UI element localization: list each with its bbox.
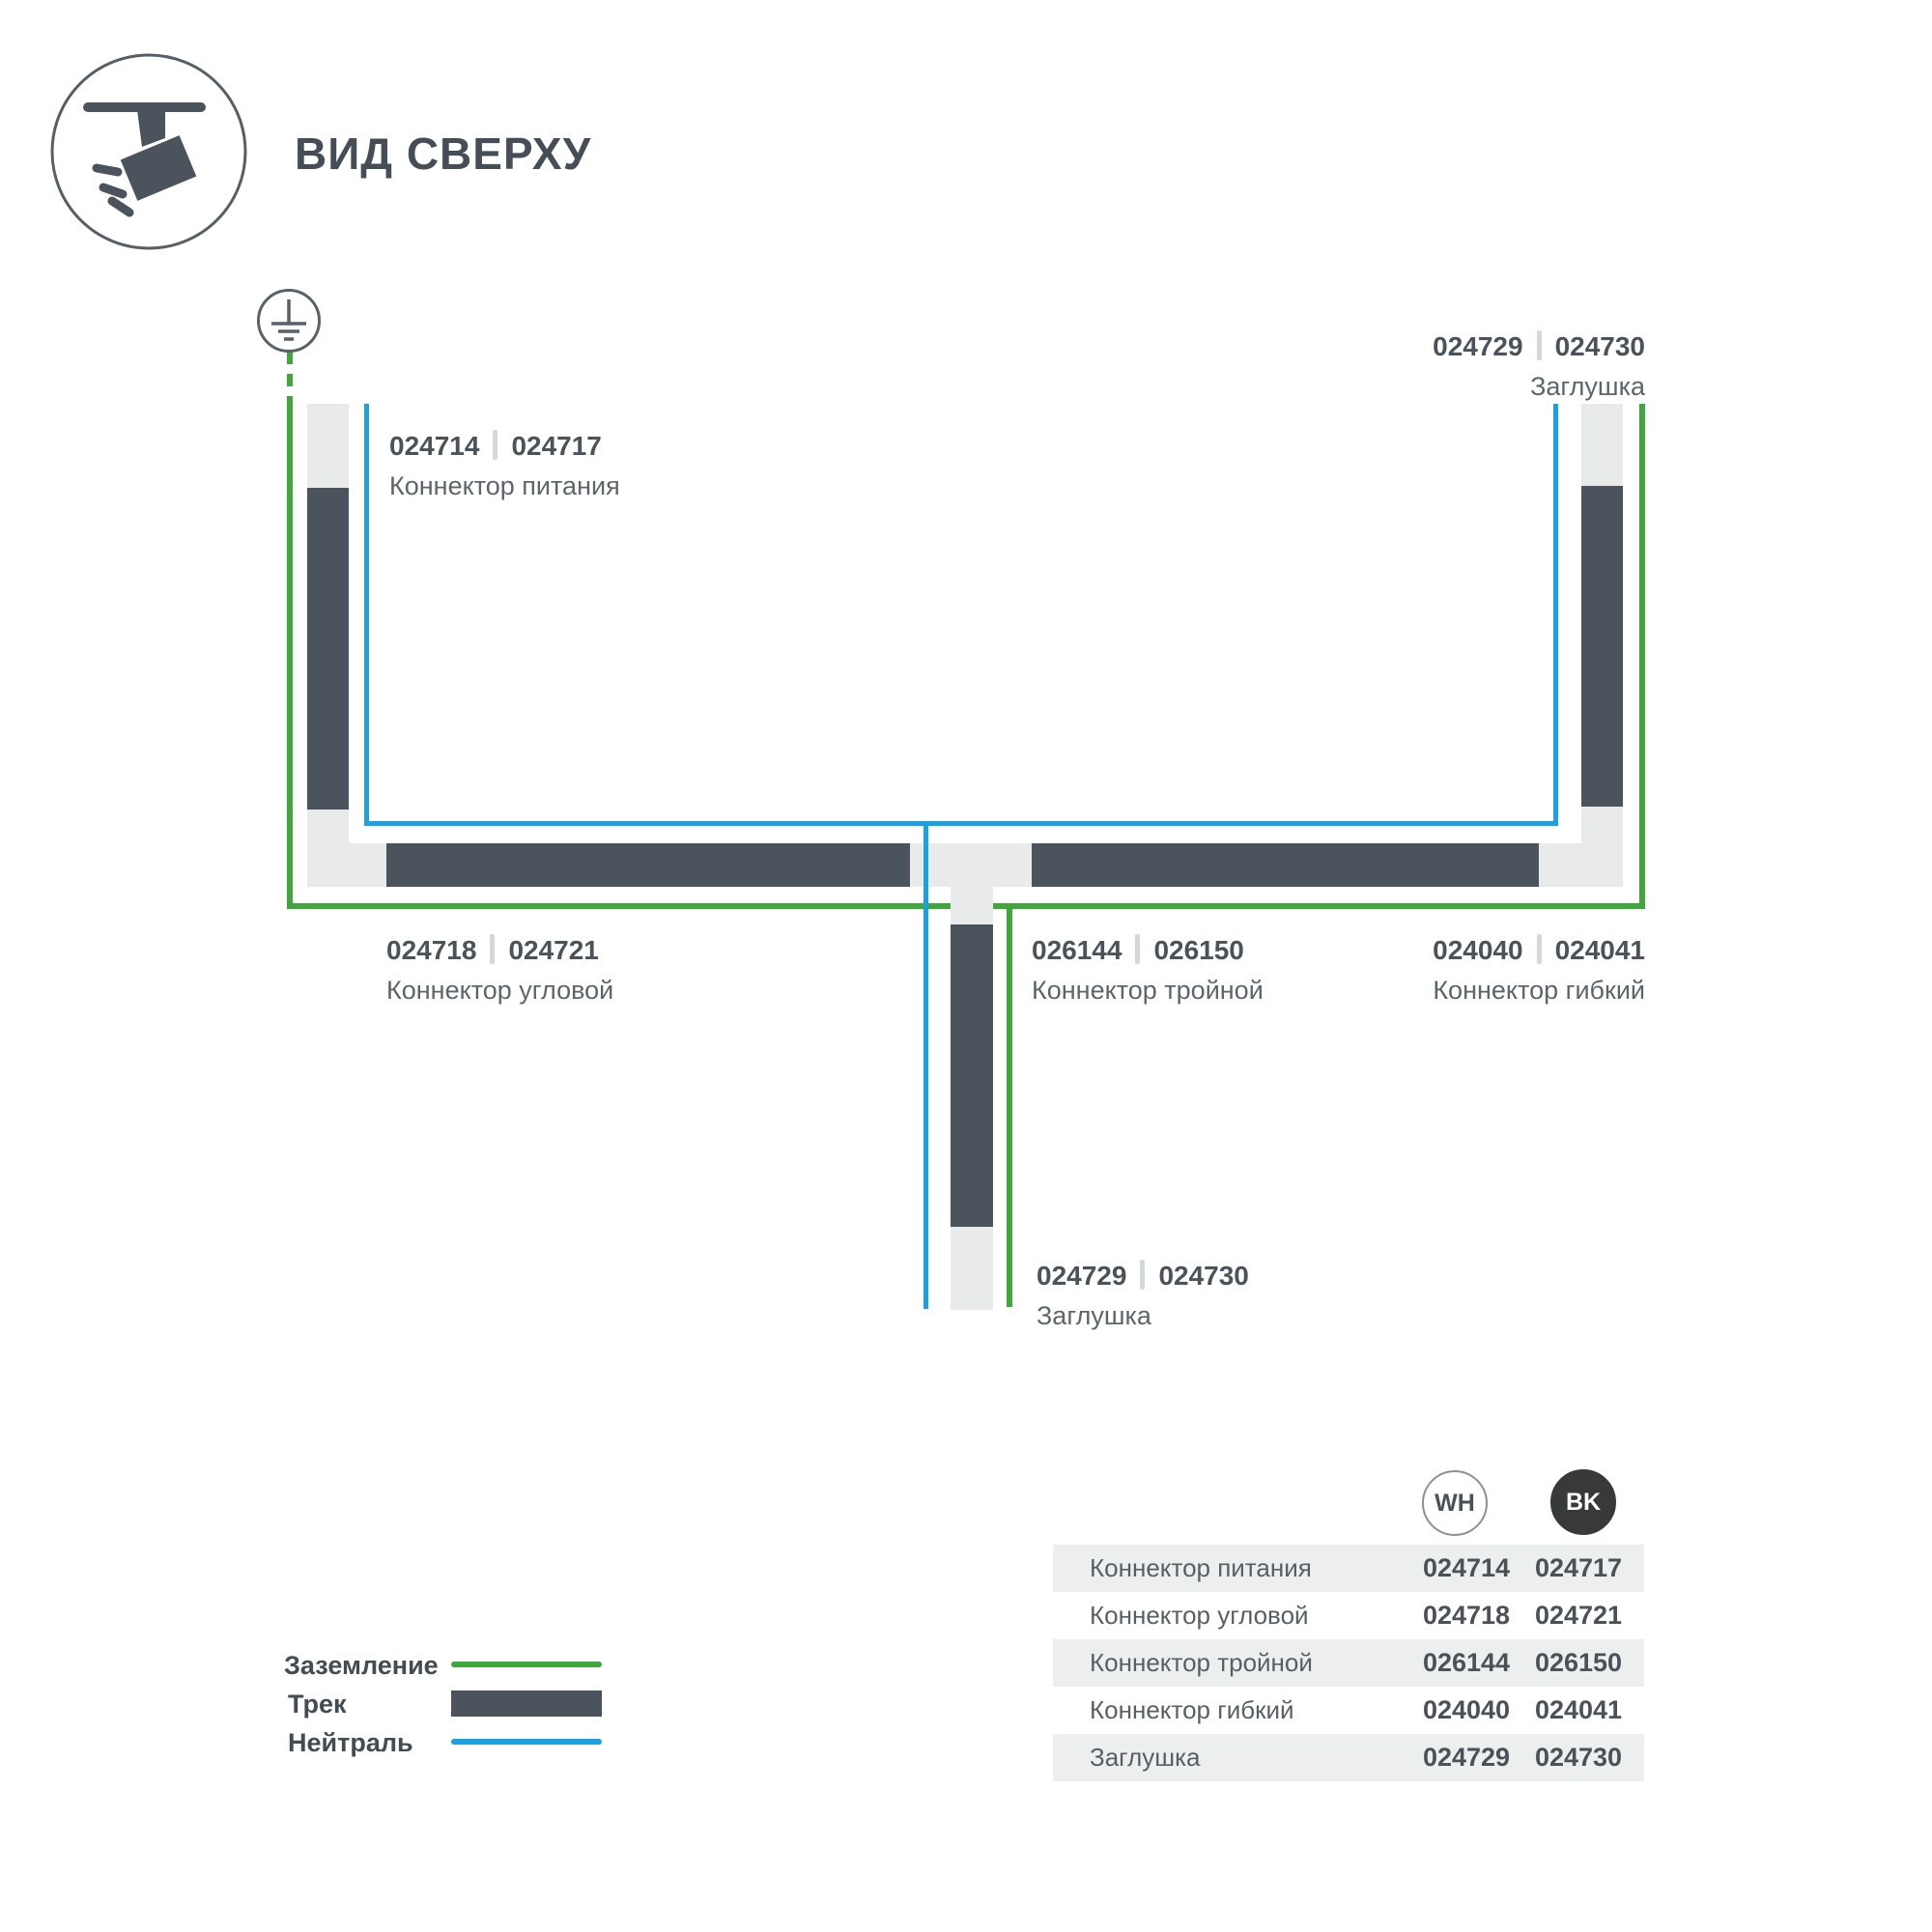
legend-swatch-track-bar (451, 1690, 602, 1717)
ground-wire-bottom-right (993, 903, 1645, 909)
legend-label-track: Трек (288, 1690, 347, 1719)
legend-swatch-neutral-line (451, 1739, 602, 1745)
code-divider (1135, 934, 1140, 964)
table-row: Коннектор питания 024714 024717 (1053, 1545, 1644, 1592)
track-spotlight-icon (48, 51, 249, 257)
neutral-wire-right-vertical (1553, 404, 1558, 826)
table-row: Заглушка 024729 024730 (1053, 1734, 1644, 1781)
label-corner-connector: 024718024721 Коннектор угловой (386, 929, 613, 1006)
row-wh-code: 024729 (1412, 1743, 1520, 1773)
label-codes: 024040024041 (1433, 929, 1645, 966)
row-name: Заглушка (1053, 1743, 1412, 1773)
label-codes: 026144026150 (1032, 929, 1264, 966)
label-power-connector: 024714024717 Коннектор питания (389, 425, 620, 501)
row-name: Коннектор питания (1053, 1553, 1412, 1583)
label-codes: 024714024717 (389, 425, 620, 462)
ground-wire-bottom-left (287, 903, 951, 909)
code-divider (1140, 1260, 1145, 1290)
label-name: Коннектор питания (389, 471, 620, 501)
label-codes: 024729024730 (1433, 326, 1645, 362)
ground-wire-right-vertical (1639, 404, 1645, 909)
label-codes: 024729024730 (1037, 1255, 1249, 1292)
legend-label-ground: Заземление (284, 1651, 439, 1681)
row-wh-code: 026144 (1412, 1648, 1520, 1678)
label-name: Коннектор угловой (386, 976, 613, 1006)
track-segment-down (951, 924, 993, 1227)
label-endcap-top: 024729024730 Заглушка (1433, 326, 1645, 402)
row-bk-code: 024041 (1520, 1695, 1636, 1725)
label-name: Коннектор гибкий (1433, 976, 1645, 1006)
column-badge-white: WH (1422, 1470, 1488, 1536)
label-triple-connector: 026144026150 Коннектор тройной (1032, 929, 1264, 1006)
row-name: Коннектор тройной (1053, 1648, 1412, 1678)
label-codes: 024718024721 (386, 929, 613, 966)
table-row: Коннектор гибкий 024040 024041 (1053, 1687, 1644, 1734)
code-divider (493, 430, 497, 460)
row-wh-code: 024714 (1412, 1553, 1520, 1583)
row-bk-code: 024721 (1520, 1601, 1636, 1631)
label-endcap-bottom: 024729024730 Заглушка (1037, 1255, 1249, 1331)
ground-wire-junction-drop (1007, 903, 1012, 1307)
track-segment-right (1581, 486, 1623, 807)
code-divider (1537, 330, 1542, 360)
parts-table: Коннектор питания 024714 024717 Коннекто… (1053, 1545, 1644, 1781)
row-bk-code: 024717 (1520, 1553, 1636, 1583)
track-segment-left (307, 488, 349, 810)
row-wh-code: 024040 (1412, 1695, 1520, 1725)
row-name: Коннектор угловой (1053, 1601, 1412, 1631)
page-title: ВИД СВЕРХУ (295, 128, 591, 180)
ground-wire-left-vertical (287, 404, 293, 909)
code-divider (1537, 934, 1542, 964)
label-name: Заглушка (1433, 372, 1645, 402)
neutral-wire-horizontal (364, 821, 1558, 826)
row-bk-code: 024730 (1520, 1743, 1636, 1773)
track-segment-horizontal-left (386, 843, 910, 887)
label-name: Заглушка (1037, 1301, 1249, 1331)
row-name: Коннектор гибкий (1053, 1695, 1412, 1725)
earth-ground-icon (255, 287, 325, 361)
label-flex-connector: 024040024041 Коннектор гибкий (1433, 929, 1645, 1006)
table-row: Коннектор тройной 026144 026150 (1053, 1639, 1644, 1687)
label-name: Коннектор тройной (1032, 976, 1264, 1006)
legend-label-neutral: Нейтраль (288, 1728, 413, 1758)
code-divider (490, 934, 495, 964)
table-row: Коннектор угловой 024718 024721 (1053, 1592, 1644, 1639)
track-segment-horizontal-right (1032, 843, 1539, 887)
row-wh-code: 024718 (1412, 1601, 1520, 1631)
neutral-wire-junction-drop (923, 821, 928, 1309)
row-bk-code: 026150 (1520, 1648, 1636, 1678)
legend-swatch-ground-line (451, 1662, 602, 1667)
column-badge-black: BK (1550, 1469, 1616, 1535)
neutral-wire-left-vertical (364, 404, 369, 826)
